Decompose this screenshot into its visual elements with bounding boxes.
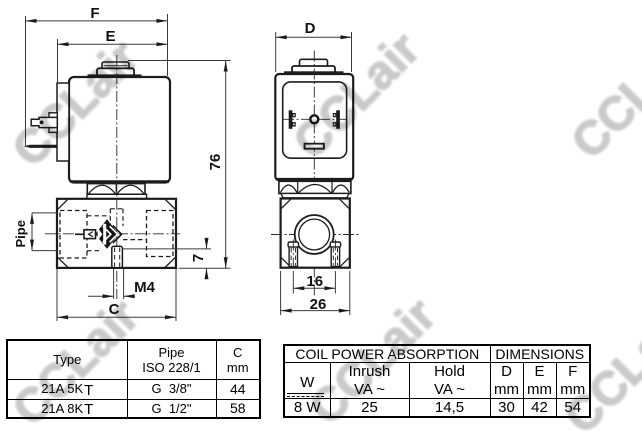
svg-text:26: 26 [310, 296, 327, 313]
svg-text:D: D [305, 20, 316, 37]
svg-text:Pipe: Pipe [13, 220, 28, 247]
svg-text:16: 16 [306, 273, 323, 290]
svg-text:F: F [90, 5, 99, 22]
svg-text:76: 76 [207, 154, 224, 171]
svg-text:7: 7 [190, 254, 207, 262]
svg-text:M4: M4 [134, 279, 155, 296]
